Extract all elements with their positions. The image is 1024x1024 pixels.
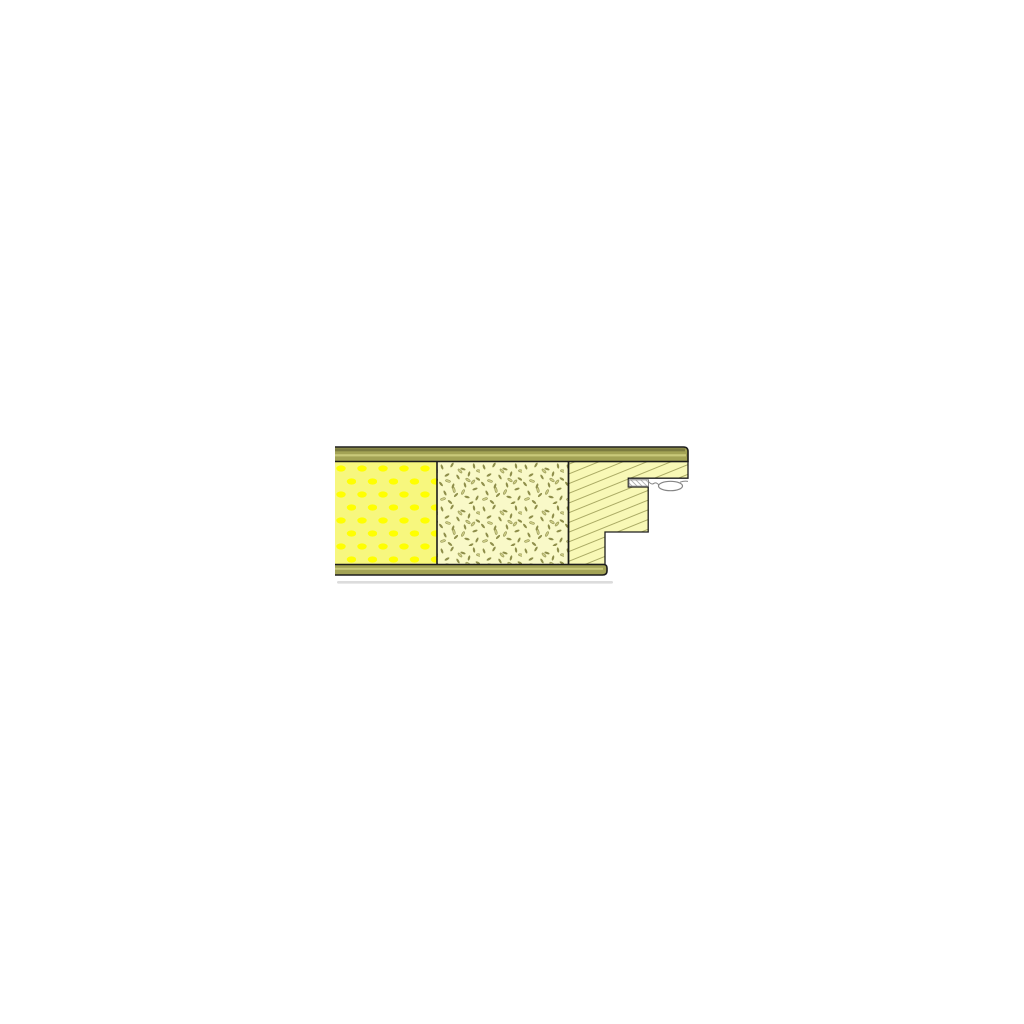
gasket-tail — [680, 481, 688, 482]
drawing-canvas — [0, 0, 1024, 1024]
top-skin-band — [335, 447, 688, 462]
gasket-squiggle — [649, 482, 660, 486]
timber-edge — [569, 462, 689, 565]
bottom-skin-light-stripe — [335, 568, 603, 570]
insulation-layer — [335, 462, 437, 566]
gasket-carrier — [629, 480, 649, 486]
bottom-skin-band — [335, 565, 607, 576]
top-skin-dark-stripe — [335, 448, 685, 451]
top-skin-light-stripe — [335, 454, 686, 456]
divider-insulation-board — [436, 462, 438, 565]
gasket-bulb — [659, 481, 683, 490]
core-board-layer — [437, 462, 569, 566]
section-detail-drawing — [0, 0, 1024, 1024]
divider-board-timber — [568, 462, 570, 565]
drop-shadow-line — [337, 581, 613, 584]
